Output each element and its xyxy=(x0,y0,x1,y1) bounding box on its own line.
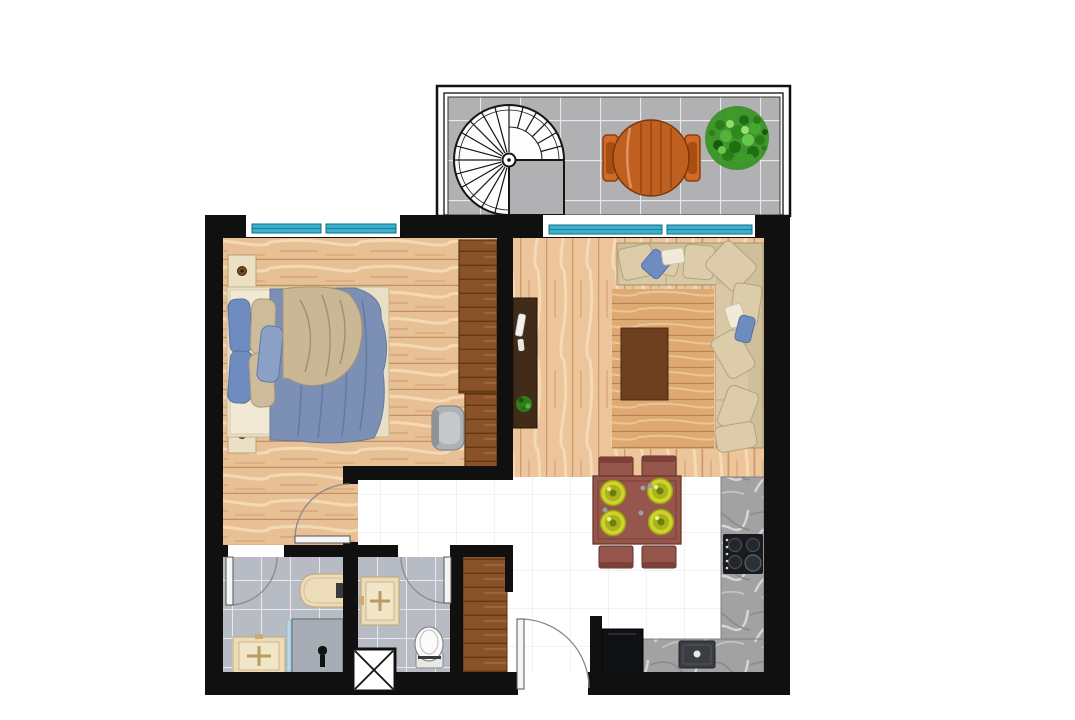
console-plant-icon xyxy=(516,396,532,412)
spiral-staircase-icon xyxy=(454,105,564,215)
cooktop xyxy=(723,534,763,574)
round-table xyxy=(613,120,689,196)
tv-console xyxy=(513,298,537,428)
sofa-pillow-cream-1 xyxy=(661,248,685,266)
bedroom-window xyxy=(246,215,400,237)
shower-glass-panel xyxy=(287,620,291,672)
wall-right xyxy=(764,215,790,695)
coffee-table xyxy=(621,328,668,400)
double-bed xyxy=(227,287,389,443)
wardrobe xyxy=(459,240,497,393)
shower-stall xyxy=(287,619,343,673)
living-room-window xyxy=(543,215,755,237)
washbasin-2 xyxy=(359,577,399,625)
wall-kitchen-stub xyxy=(590,616,602,674)
shower-head-icon xyxy=(318,646,327,655)
entry-opening xyxy=(518,672,588,695)
bathtub xyxy=(300,574,345,607)
desk xyxy=(465,394,497,467)
floor-plan-drawing xyxy=(0,0,1075,720)
toilet xyxy=(415,627,443,668)
balcony xyxy=(437,86,790,216)
kitchen-sink xyxy=(679,641,715,668)
nightstand-top xyxy=(228,255,256,292)
refrigerator xyxy=(602,629,643,674)
wall-bedroom-bottom xyxy=(343,466,513,480)
wall-bottom xyxy=(205,672,790,695)
floor-plan xyxy=(0,0,1075,720)
hall-closet xyxy=(463,552,507,675)
desk-chair xyxy=(432,406,464,450)
wall-left xyxy=(205,215,223,695)
technical-shaft xyxy=(353,649,395,691)
wall-bath2-closet xyxy=(450,557,463,675)
plant-icon xyxy=(705,106,769,170)
washbasin-1 xyxy=(233,634,285,675)
wall-bedroom-living xyxy=(497,237,513,480)
